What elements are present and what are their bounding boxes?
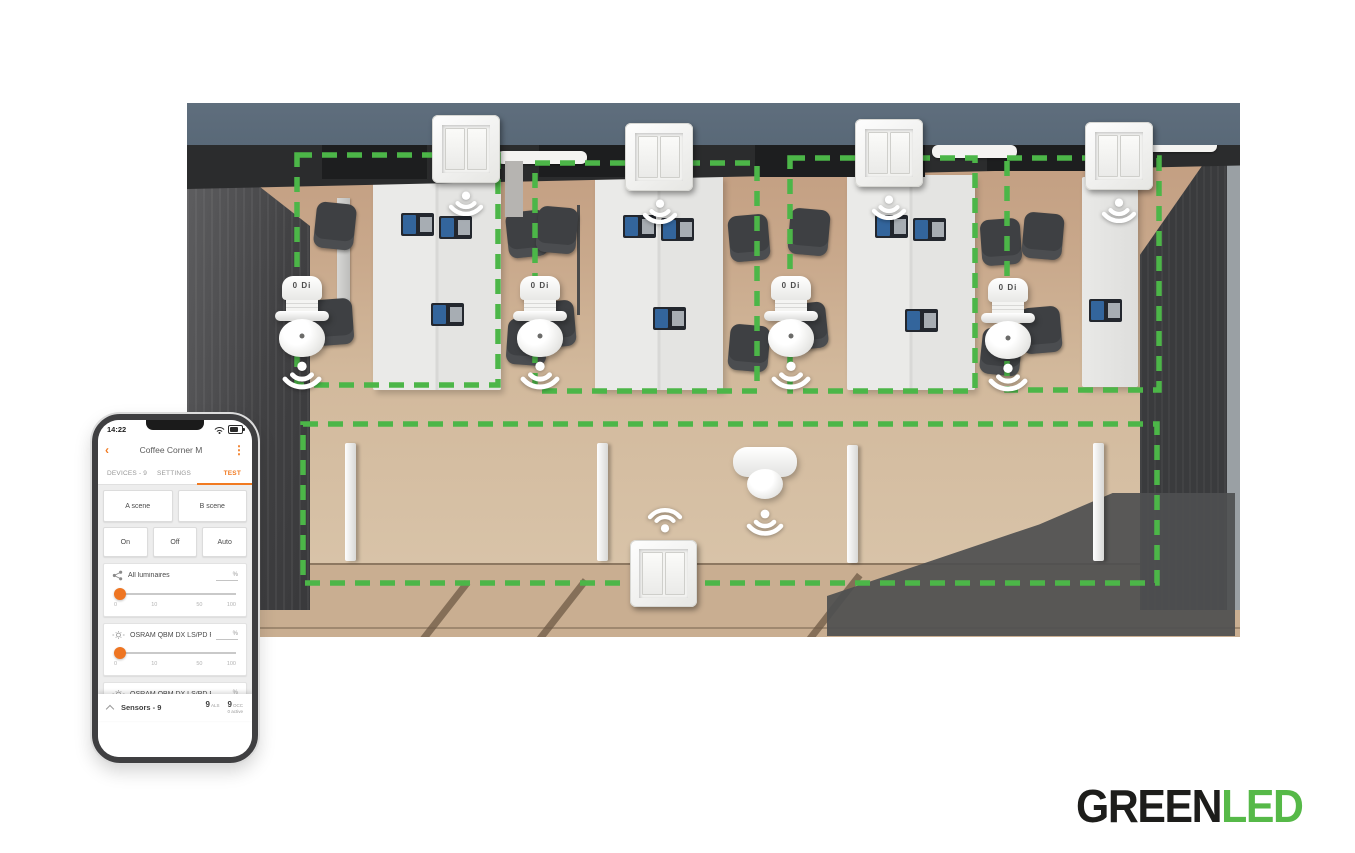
battery-icon xyxy=(228,425,243,434)
slider-knob[interactable] xyxy=(114,588,126,600)
signal-icon xyxy=(642,503,688,533)
app-screen: 14:22 ‹ Coffee Corner M ⋮ DEVICES - 9 SE… xyxy=(98,420,252,757)
brightness-icon xyxy=(112,630,125,640)
motion-sensor-2: 0 Di xyxy=(512,276,568,358)
als-count: 9ALS xyxy=(206,701,220,709)
a-scene-button[interactable]: A scene xyxy=(103,490,173,522)
sensor-top-label: 0 Di xyxy=(771,276,811,300)
dim-slider[interactable] xyxy=(114,587,236,601)
tab-test[interactable]: TEST xyxy=(196,470,252,477)
signal-icon xyxy=(764,361,818,395)
motion-sensor-1: 0 Di xyxy=(274,276,330,358)
app-header: ‹ Coffee Corner M ⋮ xyxy=(98,436,252,463)
sensor-top-label: 0 Di xyxy=(282,276,322,300)
occ-active-note: 0 active xyxy=(227,710,243,715)
zone-overlay xyxy=(187,103,1240,637)
sensor-top-label: 0 Di xyxy=(520,276,560,300)
sensors-bar[interactable]: Sensors - 9 9ALS 9OCC 0 active xyxy=(98,694,252,721)
luminaire-card: OSRAM QBM DX LS/PD R eb… % xyxy=(103,682,247,694)
percent-field[interactable]: % xyxy=(216,571,238,581)
signal-icon xyxy=(443,191,489,221)
wall-switch-1 xyxy=(432,115,500,183)
office-3d-render: 0 Di 0 Di 0 Di 0 Di xyxy=(187,103,1240,637)
logo-text-led: LED xyxy=(1221,780,1302,832)
signal-icon xyxy=(637,199,683,229)
signal-icon xyxy=(866,195,912,225)
page-title: Coffee Corner M xyxy=(109,445,233,455)
wall-switch-2 xyxy=(625,123,693,191)
status-time: 14:22 xyxy=(107,425,126,434)
occ-count: 9OCC 0 active xyxy=(227,701,243,715)
motion-sensor-4: 0 Di xyxy=(980,278,1036,360)
off-button[interactable]: Off xyxy=(153,527,198,557)
signal-icon xyxy=(1096,198,1142,228)
motion-sensor-3: 0 Di xyxy=(763,276,819,358)
luminaire-card: All luminaires % 01050100 xyxy=(103,563,247,617)
ceiling-sensor xyxy=(730,447,800,509)
logo-text-green: GREEN xyxy=(1076,780,1221,832)
greenled-logo: GREENLED xyxy=(1076,783,1303,829)
percent-field[interactable]: % xyxy=(216,630,238,640)
active-tab-underline xyxy=(197,483,252,485)
page: 0 Di 0 Di 0 Di 0 Di xyxy=(0,0,1355,853)
signal-icon xyxy=(981,363,1035,397)
b-scene-button[interactable]: B scene xyxy=(178,490,248,522)
slider-ticks: 01050100 xyxy=(114,602,236,610)
luminaire-card: OSRAM QBM DX LS/PD R 8e… % 01050100 xyxy=(103,623,247,676)
dim-slider[interactable] xyxy=(114,646,236,660)
phone-notch xyxy=(146,420,204,430)
sensor-top-label: 0 Di xyxy=(988,278,1028,302)
auto-button[interactable]: Auto xyxy=(202,527,247,557)
luminaire-name: All luminaires xyxy=(128,572,211,579)
group-icon xyxy=(112,570,123,581)
luminaire-name: OSRAM QBM DX LS/PD R 8e… xyxy=(130,632,211,639)
wall-switch-4 xyxy=(1085,122,1153,190)
tab-bar: DEVICES - 9 SETTINGS TEST xyxy=(98,463,252,485)
slider-knob[interactable] xyxy=(114,647,126,659)
zone-outline-2 xyxy=(535,163,757,391)
wifi-status-icon xyxy=(214,426,225,434)
slider-ticks: 01050100 xyxy=(114,661,236,669)
tab-devices[interactable]: DEVICES - 9 xyxy=(98,470,152,477)
overflow-menu-icon[interactable]: ⋮ xyxy=(233,444,245,456)
tab-settings[interactable]: SETTINGS xyxy=(152,470,197,477)
chevron-up-icon[interactable] xyxy=(106,704,114,712)
wall-switch-3 xyxy=(855,119,923,187)
sensors-bar-title: Sensors - 9 xyxy=(121,703,161,712)
wall-switch-5 xyxy=(630,540,697,607)
test-tab-content: A scene B scene On Off Auto All luminair… xyxy=(98,485,252,694)
signal-icon xyxy=(275,361,329,395)
on-button[interactable]: On xyxy=(103,527,148,557)
smartphone: 14:22 ‹ Coffee Corner M ⋮ DEVICES - 9 SE… xyxy=(92,414,258,763)
signal-icon xyxy=(513,361,567,395)
signal-icon xyxy=(740,509,790,541)
